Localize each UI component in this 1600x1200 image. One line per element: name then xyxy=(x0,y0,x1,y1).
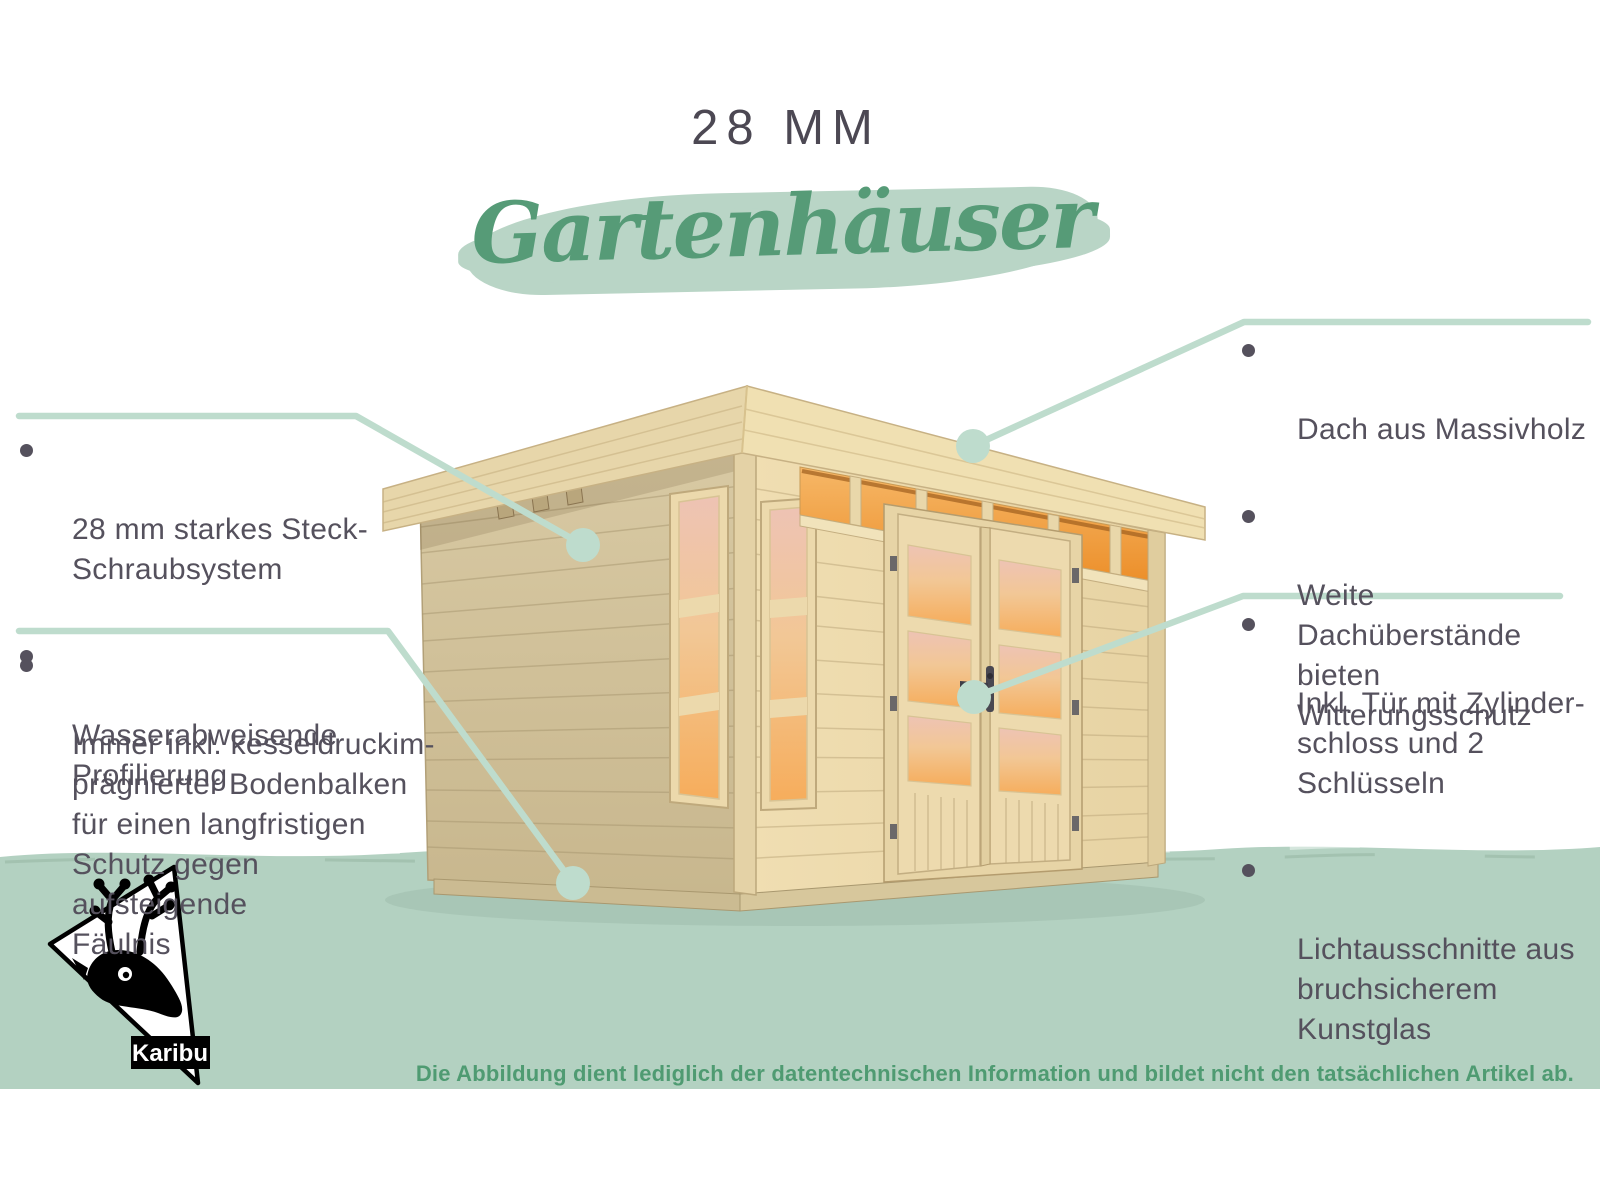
bullet-icon xyxy=(1242,618,1255,631)
callout-text: Inkl. Tür mit Zylinder- schloss und 2 Sc… xyxy=(1297,684,1600,804)
callout-floor-beams: Immer inkl. kesseldruckim- prägnierter B… xyxy=(20,645,440,1011)
bullet-icon xyxy=(1242,344,1255,357)
front-window xyxy=(761,498,816,810)
callout-dot-wall xyxy=(566,528,600,562)
garden-house xyxy=(383,386,1205,911)
side-window xyxy=(670,486,728,808)
callout-text: Lichtausschnitte aus bruchsicherem Kunst… xyxy=(1297,930,1600,1050)
callout-text: Immer inkl. kesseldruckim- prägnierter B… xyxy=(72,725,440,965)
bullet-icon xyxy=(20,444,33,457)
callout-dot-door xyxy=(957,680,991,714)
logo-brand-text: Karibu xyxy=(132,1040,208,1067)
bullet-icon xyxy=(20,659,33,672)
callout-text: Dach aus Massivholz xyxy=(1297,410,1600,450)
bullet-icon xyxy=(1242,864,1255,877)
list-item: Lichtausschnitte aus bruchsicherem Kunst… xyxy=(1242,850,1600,1090)
category-title: Gartenhäuser xyxy=(435,167,1129,284)
right-corner-trim xyxy=(1148,530,1165,866)
disclaimer-text: Die Abbildung dient lediglich der datent… xyxy=(416,1061,1574,1087)
corner-trim-board xyxy=(734,450,756,895)
list-item: Immer inkl. kesseldruckim- prägnierter B… xyxy=(20,645,440,1005)
list-item: Inkl. Tür mit Zylinder- schloss und 2 Sc… xyxy=(1242,604,1600,844)
bullet-icon xyxy=(1242,510,1255,523)
list-item: 28 mm starkes Steck- Schraubsystem xyxy=(20,430,420,630)
list-item: Dach aus Massivholz xyxy=(1242,330,1600,490)
callout-text: 28 mm starkes Steck- Schraubsystem xyxy=(72,510,420,590)
infographic-page: Karibu 28 MM Gartenhäuser 28 mm starkes … xyxy=(0,0,1600,1200)
callout-door: Inkl. Tür mit Zylinder- schloss und 2 Sc… xyxy=(1242,604,1600,1096)
callout-dot-roof xyxy=(956,429,990,463)
callout-dot-floor xyxy=(556,866,590,900)
page-title: 28 MM xyxy=(0,100,1586,156)
